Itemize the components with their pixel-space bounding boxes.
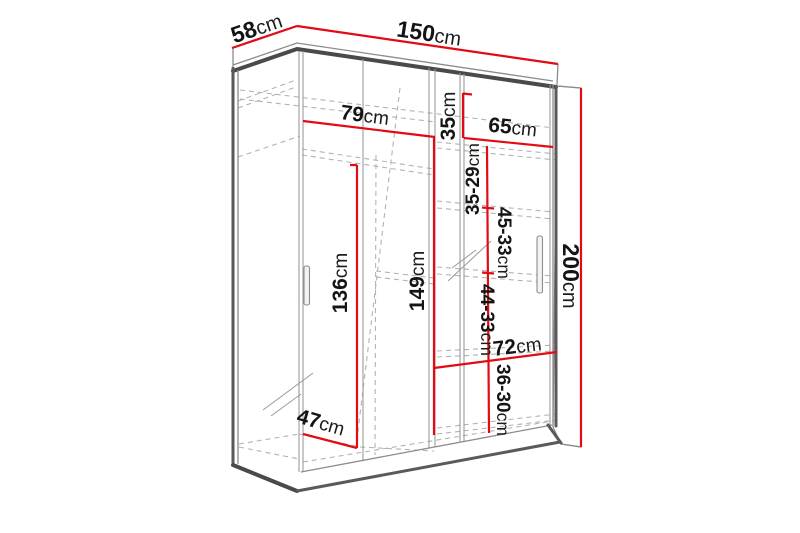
wardrobe-carcass (233, 43, 581, 491)
dimension-labels: 58cm 150cm 200cm 79cm 35cm 65cm 35-29cm … (227, 7, 584, 441)
dim-right-width-bottom-label: 72cm (492, 332, 543, 361)
dim-shelf-gap-1-label: 35-29cm (463, 143, 484, 215)
mirror-hatch-marks (263, 241, 491, 416)
dim-depth-top-label: 58cm (227, 7, 285, 49)
wardrobe-dimension-diagram: 58cm 150cm 200cm 79cm 35cm 65cm 35-29cm … (0, 0, 800, 533)
dimension-lines (232, 26, 581, 448)
left-door-handle (304, 266, 310, 305)
dim-shelf-gap-2-label: 45-33cm (493, 207, 514, 279)
dim-width-top-label: 150cm (395, 15, 463, 50)
dim-shelf-gap-4-label: 36-30cm (492, 364, 513, 436)
dim-height-label: 200cm (558, 243, 584, 308)
diagram-canvas: 58cm 150cm 200cm 79cm 35cm 65cm 35-29cm … (0, 0, 800, 533)
dim-right-width-top-label: 65cm (487, 114, 538, 142)
right-door-handle (537, 236, 543, 293)
dim-top-shelf-label: 35cm (437, 92, 460, 141)
dim-hanging-height-label: 136cm (329, 253, 352, 313)
dim-center-height-label: 149cm (406, 251, 429, 311)
